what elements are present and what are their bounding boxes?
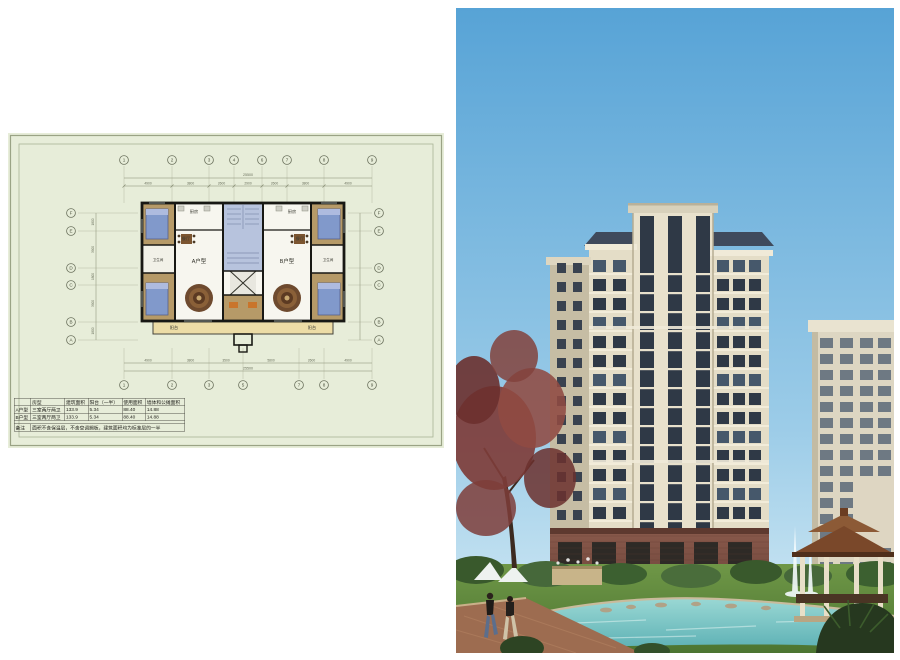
side-window bbox=[557, 301, 566, 311]
window bbox=[613, 431, 626, 443]
axis-label: 3 bbox=[208, 383, 211, 388]
balcony-slab bbox=[713, 501, 769, 503]
window bbox=[860, 338, 873, 348]
side-window bbox=[557, 510, 566, 520]
window bbox=[733, 298, 745, 310]
window bbox=[717, 298, 729, 310]
axis-label: F bbox=[70, 211, 73, 216]
balcony-slab bbox=[713, 482, 769, 484]
window bbox=[840, 402, 853, 412]
svg-text:卫生间: 卫生间 bbox=[323, 257, 334, 262]
window bbox=[860, 418, 873, 428]
side-window bbox=[557, 263, 566, 273]
dim-segment: 4900 bbox=[344, 359, 352, 363]
window bbox=[613, 336, 626, 348]
side-window bbox=[557, 282, 566, 292]
window bbox=[749, 469, 761, 481]
window bbox=[613, 355, 626, 367]
window bbox=[593, 374, 606, 386]
window bbox=[717, 336, 729, 348]
dim-segment: 4900 bbox=[144, 182, 152, 186]
window bbox=[878, 434, 891, 444]
window bbox=[613, 260, 626, 272]
balcony-slab bbox=[589, 425, 633, 427]
window bbox=[733, 279, 745, 291]
window bbox=[717, 374, 729, 386]
balcony-slab bbox=[713, 387, 769, 389]
axis-label: 3 bbox=[208, 158, 211, 163]
window bbox=[593, 488, 606, 500]
balcony-slab bbox=[589, 387, 633, 389]
balcony-slab bbox=[589, 292, 633, 294]
svg-text:阳台: 阳台 bbox=[308, 324, 316, 331]
balcony-slab bbox=[589, 482, 633, 484]
window bbox=[878, 466, 891, 476]
window bbox=[593, 507, 606, 519]
tower-spandrel bbox=[640, 482, 710, 484]
unit-a-label: A户型 bbox=[192, 257, 207, 265]
window bbox=[613, 412, 626, 424]
left-wing-cornice bbox=[585, 244, 637, 250]
window bbox=[593, 393, 606, 405]
balcony-slab bbox=[713, 444, 769, 446]
tower-spandrel bbox=[640, 425, 710, 427]
dim-segment: 2900 bbox=[244, 182, 252, 186]
window bbox=[820, 482, 833, 492]
window bbox=[733, 355, 745, 367]
window bbox=[613, 298, 626, 310]
svg-text:厨房: 厨房 bbox=[190, 208, 198, 215]
window bbox=[878, 370, 891, 380]
window bbox=[820, 498, 833, 508]
table-row: A户型 三室两厅两卫 133.9 5.34 88.40 14.88 bbox=[14, 406, 185, 414]
window bbox=[613, 469, 626, 481]
window bbox=[749, 507, 761, 519]
window bbox=[840, 338, 853, 348]
balcony-slab bbox=[589, 520, 633, 522]
side-window bbox=[573, 453, 582, 463]
tower-spandrel bbox=[640, 406, 710, 408]
axis-label: 9 bbox=[371, 383, 374, 388]
axis-label: A bbox=[377, 338, 381, 343]
window bbox=[593, 469, 606, 481]
tower-spandrel bbox=[640, 387, 710, 389]
window bbox=[613, 374, 626, 386]
window bbox=[593, 279, 606, 291]
window bbox=[878, 418, 891, 428]
balcony-slab bbox=[589, 368, 633, 370]
dim-segment: 3800 bbox=[302, 182, 310, 186]
side-window bbox=[573, 282, 582, 292]
window bbox=[749, 260, 761, 272]
dim-segment: 3800 bbox=[187, 182, 195, 186]
window bbox=[878, 386, 891, 396]
window bbox=[717, 488, 729, 500]
axis-label: B bbox=[377, 320, 380, 325]
svg-text:餐厅: 餐厅 bbox=[296, 235, 304, 242]
side-window bbox=[573, 491, 582, 501]
window bbox=[613, 279, 626, 291]
balcony-strip bbox=[153, 321, 333, 334]
window bbox=[878, 402, 891, 412]
unit-b-label: B户型 bbox=[280, 257, 295, 265]
window bbox=[840, 354, 853, 364]
tower-spandrel bbox=[640, 349, 710, 351]
balcony-slab bbox=[713, 292, 769, 294]
dim-segment: 2600 bbox=[271, 182, 279, 186]
entry-stoop bbox=[234, 334, 252, 345]
apartment-plan: 厨房 厨房 餐厅 餐厅 卫生间 卫生间 阳台 阳台 A户型 B户型 bbox=[142, 203, 344, 352]
window bbox=[749, 336, 761, 348]
axis-label: 7 bbox=[298, 383, 301, 388]
dim-segment: 4900 bbox=[144, 359, 152, 363]
window bbox=[749, 488, 761, 500]
dim-segment: 1800 bbox=[91, 327, 95, 334]
window bbox=[733, 469, 745, 481]
side-window bbox=[573, 339, 582, 349]
axis-label: E bbox=[69, 229, 72, 234]
window bbox=[733, 393, 745, 405]
axis-label: B bbox=[69, 320, 72, 325]
side-window bbox=[573, 301, 582, 311]
axis-label: C bbox=[69, 283, 73, 288]
balcony-slab bbox=[713, 311, 769, 313]
window bbox=[820, 450, 833, 460]
balcony-slab bbox=[713, 330, 769, 332]
svg-text:卫生间: 卫生间 bbox=[153, 257, 164, 262]
axis-label: 2 bbox=[171, 383, 174, 388]
window bbox=[749, 393, 761, 405]
dim-segment: 2600 bbox=[218, 182, 226, 186]
window bbox=[717, 469, 729, 481]
window bbox=[593, 298, 606, 310]
table-header-row: 房型 建筑面积 阳台（一半） 使用面积 墙体和公摊面积 bbox=[14, 398, 185, 406]
axis-label: 6 bbox=[261, 158, 264, 163]
window bbox=[593, 412, 606, 424]
window bbox=[878, 354, 891, 364]
window bbox=[749, 374, 761, 386]
tower-spandrel bbox=[640, 444, 710, 446]
window bbox=[733, 260, 745, 272]
balcony-slab bbox=[713, 520, 769, 522]
window bbox=[820, 354, 833, 364]
window bbox=[593, 355, 606, 367]
window bbox=[733, 412, 745, 424]
main-building bbox=[546, 203, 774, 590]
balcony-slab bbox=[713, 368, 769, 370]
side-window bbox=[557, 339, 566, 349]
tower-spandrel bbox=[640, 330, 710, 332]
dim-total: 25500 bbox=[243, 367, 253, 371]
rendering-scene bbox=[456, 8, 894, 653]
window bbox=[820, 402, 833, 412]
balcony-slab bbox=[589, 463, 633, 465]
window bbox=[840, 450, 853, 460]
window bbox=[860, 402, 873, 412]
axis-label: D bbox=[69, 266, 73, 271]
screenshot-canvas: { "palette": { "sheet_bg": "#e7edd9", "s… bbox=[0, 0, 900, 660]
table-row: B户型 三室两厅两卫 133.9 5.34 88.40 14.88 bbox=[14, 413, 185, 421]
tower-spandrel bbox=[640, 501, 710, 503]
window bbox=[840, 434, 853, 444]
dim-segment: 3900 bbox=[91, 246, 95, 253]
svg-text:餐厅: 餐厅 bbox=[182, 235, 190, 242]
window bbox=[593, 336, 606, 348]
dim-segment: 3900 bbox=[91, 300, 95, 307]
window bbox=[717, 393, 729, 405]
balcony-slab bbox=[713, 463, 769, 465]
side-window bbox=[573, 377, 582, 387]
building-rendering bbox=[456, 8, 894, 653]
tower-spandrel bbox=[640, 311, 710, 313]
axis-label: 1 bbox=[123, 158, 126, 163]
axis-label: 8 bbox=[323, 158, 326, 163]
window bbox=[840, 498, 853, 508]
balcony-slab bbox=[713, 425, 769, 427]
window bbox=[840, 466, 853, 476]
window bbox=[749, 298, 761, 310]
window bbox=[860, 450, 873, 460]
balcony-slab bbox=[713, 349, 769, 351]
svg-text:阳台: 阳台 bbox=[170, 324, 178, 331]
window bbox=[820, 418, 833, 428]
tower-spandrel bbox=[640, 520, 710, 522]
window bbox=[820, 386, 833, 396]
window bbox=[717, 279, 729, 291]
window bbox=[749, 431, 761, 443]
axis-label: A bbox=[69, 338, 73, 343]
axis-label: C bbox=[377, 283, 381, 288]
window bbox=[860, 434, 873, 444]
side-window bbox=[573, 434, 582, 444]
tower-spandrel bbox=[640, 292, 710, 294]
axis-label: E bbox=[377, 229, 380, 234]
window bbox=[840, 370, 853, 380]
balcony-slab bbox=[589, 311, 633, 313]
window bbox=[733, 374, 745, 386]
side-window bbox=[573, 510, 582, 520]
window bbox=[733, 507, 745, 519]
window bbox=[840, 482, 853, 492]
balcony-slab bbox=[589, 501, 633, 503]
window bbox=[820, 434, 833, 444]
window bbox=[717, 507, 729, 519]
dim-segment: 3500 bbox=[222, 359, 230, 363]
window bbox=[749, 412, 761, 424]
window bbox=[733, 488, 745, 500]
window bbox=[733, 431, 745, 443]
axis-label: 4 bbox=[233, 158, 236, 163]
axis-label: 9 bbox=[371, 158, 374, 163]
window bbox=[878, 450, 891, 460]
balcony-slab bbox=[589, 273, 633, 275]
window bbox=[749, 279, 761, 291]
side-window bbox=[573, 358, 582, 368]
window bbox=[860, 370, 873, 380]
window bbox=[860, 466, 873, 476]
window bbox=[860, 354, 873, 364]
dim-total: 25500 bbox=[243, 173, 253, 177]
window bbox=[593, 431, 606, 443]
side-window bbox=[573, 320, 582, 330]
window bbox=[749, 355, 761, 367]
window bbox=[820, 466, 833, 476]
balcony-slab bbox=[713, 273, 769, 275]
axis-label: 1 bbox=[123, 383, 126, 388]
window bbox=[840, 418, 853, 428]
side-window bbox=[557, 358, 566, 368]
area-table: 房型 建筑面积 阳台（一半） 使用面积 墙体和公摊面积 A户型 三室两厅两卫 1… bbox=[14, 398, 186, 432]
window bbox=[717, 431, 729, 443]
window bbox=[613, 393, 626, 405]
window bbox=[820, 338, 833, 348]
window bbox=[717, 355, 729, 367]
svg-text:厨房: 厨房 bbox=[288, 208, 296, 215]
dim-segment: 1800 bbox=[91, 273, 95, 280]
window bbox=[593, 260, 606, 272]
balcony-slab bbox=[589, 444, 633, 446]
side-window bbox=[557, 320, 566, 330]
side-window bbox=[573, 396, 582, 406]
side-window bbox=[557, 434, 566, 444]
dim-segment: 4900 bbox=[344, 182, 352, 186]
balcony-slab bbox=[589, 330, 633, 332]
window bbox=[820, 370, 833, 380]
axis-label: F bbox=[378, 211, 381, 216]
balcony-slab bbox=[589, 406, 633, 408]
tower-spandrel bbox=[640, 368, 710, 370]
tower-spandrel bbox=[640, 463, 710, 465]
window bbox=[613, 507, 626, 519]
balcony-slab bbox=[589, 349, 633, 351]
table-note-row: 备注 面积不含保温层，不含空调搁板，建筑面积均为标准层的一半 bbox=[14, 424, 185, 432]
axis-label: 7 bbox=[286, 158, 289, 163]
window bbox=[717, 260, 729, 272]
side-window bbox=[573, 415, 582, 425]
dim-segment: 1800 bbox=[91, 218, 95, 225]
window bbox=[717, 412, 729, 424]
axis-label: D bbox=[377, 266, 381, 271]
window bbox=[840, 386, 853, 396]
dim-segment: 3800 bbox=[187, 359, 195, 363]
axis-label: 5 bbox=[242, 383, 245, 388]
side-cornice bbox=[546, 257, 591, 265]
side-window bbox=[573, 263, 582, 273]
window bbox=[613, 488, 626, 500]
dim-segment: 5800 bbox=[267, 359, 275, 363]
tower-glass-strips bbox=[640, 216, 710, 534]
window bbox=[860, 386, 873, 396]
balcony-slab bbox=[713, 406, 769, 408]
tower-spandrel bbox=[640, 273, 710, 275]
axis-label: 2 bbox=[171, 158, 174, 163]
axis-label: 8 bbox=[323, 383, 326, 388]
floor-plan-sheet: 1234678925500490038002600290026003800490… bbox=[8, 133, 444, 448]
dim-segment: 2600 bbox=[308, 359, 316, 363]
right-wing-cornice bbox=[709, 250, 773, 256]
window bbox=[733, 336, 745, 348]
window bbox=[878, 338, 891, 348]
